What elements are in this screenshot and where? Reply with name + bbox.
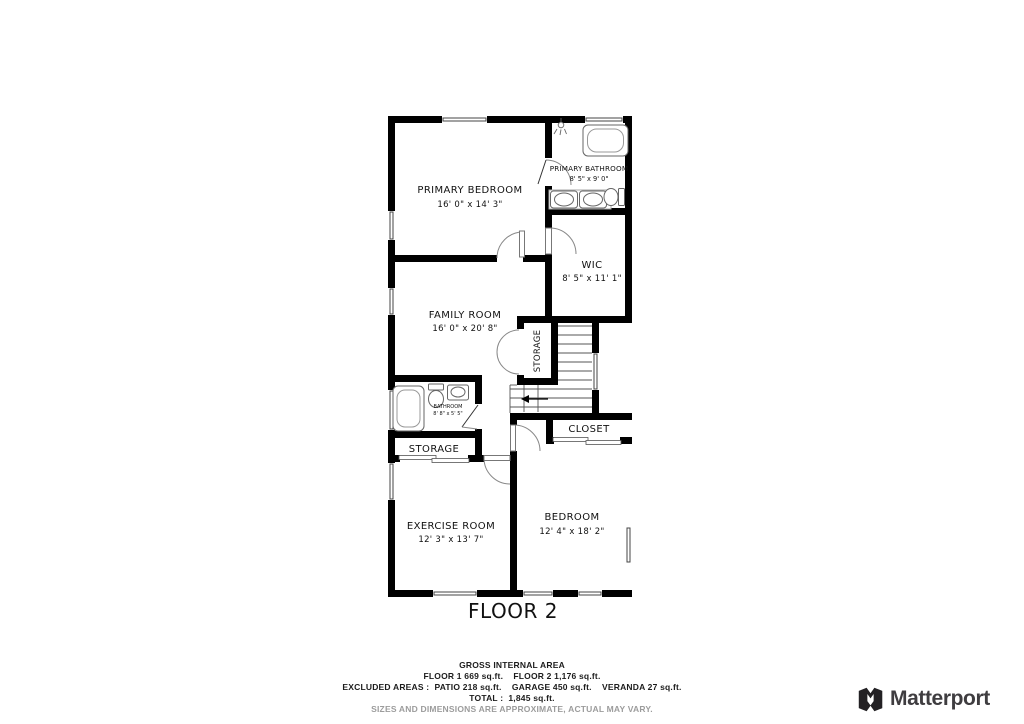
floor-plan-svg: PRIMARY BEDROOM 16' 0" x 14' 3" PRIMARY … [0, 0, 1024, 724]
room-dims-primary-bathroom: 8' 5" x 9' 0" [570, 175, 609, 183]
room-label-storage-center: STORAGE [533, 330, 543, 373]
room-dims-exercise-room: 12' 3" x 13' 7" [418, 535, 483, 545]
window [625, 527, 632, 563]
window [442, 116, 487, 123]
room-label-storage-left: STORAGE [409, 444, 459, 455]
room-dims-family-room: 16' 0" x 20' 8" [432, 324, 497, 334]
room-dims-bathroom: 8' 8" x 5' 5" [433, 411, 462, 417]
window [578, 590, 602, 597]
footer-gross-internal-area: GROSS INTERNAL AREA [0, 660, 1024, 671]
footer-floors-line: FLOOR 1 669 sq.ft. FLOOR 2 1,176 sq.ft. [0, 671, 1024, 682]
room-label-bathroom: BATHROOM [434, 404, 463, 410]
room-label-wic: WIC [581, 260, 602, 271]
stair-direction-arrow [521, 395, 548, 403]
toilet [604, 189, 625, 206]
window [523, 590, 553, 597]
room-dims-wic: 8' 5" x 11' 1" [562, 274, 622, 284]
room-label-primary-bathroom: PRIMARY BATHROOM [550, 164, 629, 173]
matterport-logo-text: Matterport [890, 687, 990, 711]
matterport-logo-icon [858, 686, 883, 713]
floor-plan-page: PRIMARY BEDROOM 16' 0" x 14' 3" PRIMARY … [0, 0, 1024, 724]
door-arc-bedroom [514, 425, 540, 451]
window [388, 463, 395, 500]
window [388, 211, 395, 240]
room-label-primary-bedroom: PRIMARY BEDROOM [417, 185, 522, 196]
door-leaf-primary-bedroom [520, 231, 525, 257]
door-leaf-wic [546, 228, 552, 254]
room-label-closet: CLOSET [568, 424, 610, 435]
window [585, 116, 623, 123]
room-label-exercise-room: EXERCISE ROOM [407, 521, 495, 532]
door-arcs-storage-double [497, 330, 519, 374]
door-leaf-bedroom [511, 425, 516, 451]
window [592, 353, 599, 390]
double-vanity [549, 190, 611, 209]
floor-label: FLOOR 2 [468, 599, 558, 623]
sink [448, 385, 469, 400]
room-dims-bedroom: 12' 4" x 18' 2" [539, 527, 604, 537]
room-label-family-room: FAMILY ROOM [429, 310, 502, 321]
window [433, 590, 477, 597]
room-dims-primary-bedroom: 16' 0" x 14' 3" [437, 200, 502, 210]
window [388, 288, 395, 315]
door-leaf-exercise [484, 456, 510, 461]
matterport-logo: Matterport [858, 683, 990, 715]
door-arc-wic [550, 228, 576, 254]
room-label-bedroom: BEDROOM [545, 512, 600, 523]
